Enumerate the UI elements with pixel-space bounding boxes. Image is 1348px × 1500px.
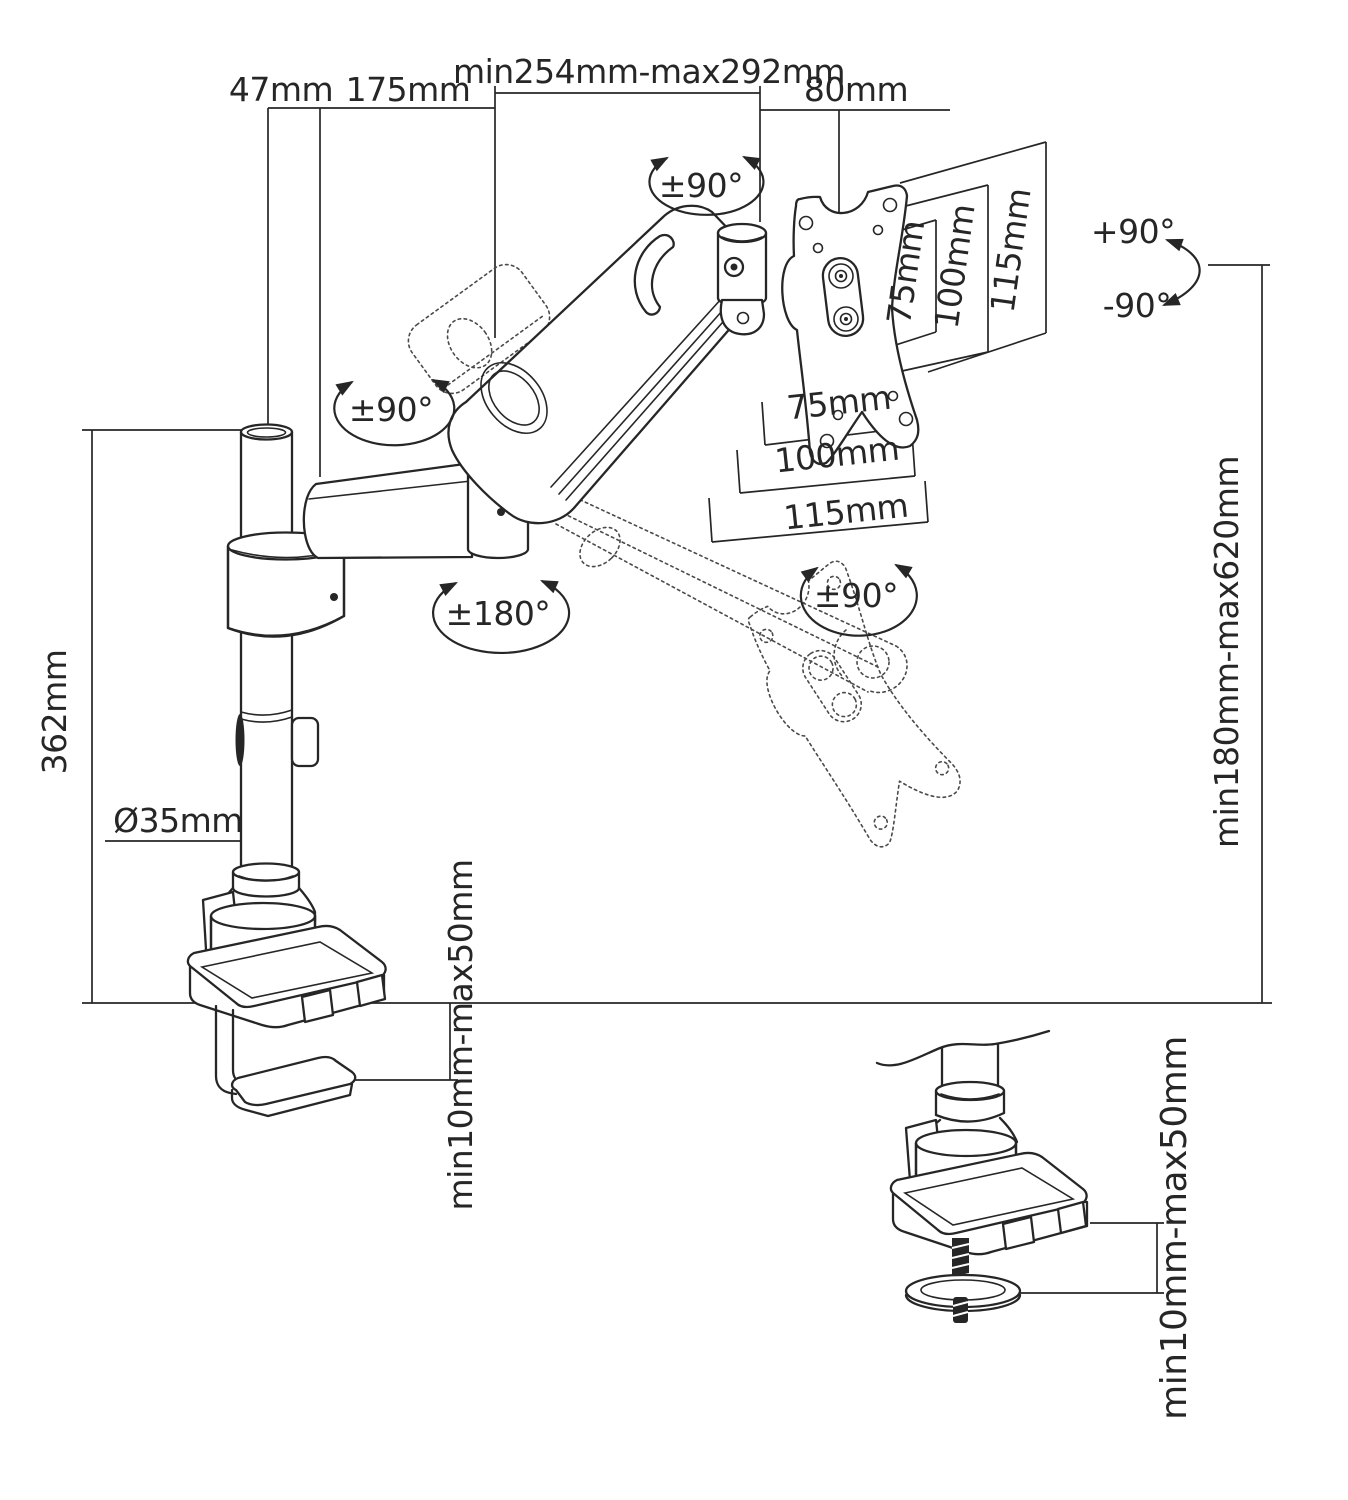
dim-clamp-thickness: min10mm-max50mm bbox=[441, 859, 480, 1210]
monitor-arm-diagram: 47mm 175mm min254mm-max292mm 80mm 362mm … bbox=[0, 0, 1348, 1500]
diagram-page: 47mm 175mm min254mm-max292mm 80mm 362mm … bbox=[0, 0, 1348, 1500]
rot-vesa: ±90° bbox=[814, 576, 898, 615]
tilt-joint bbox=[718, 224, 766, 334]
dim-175mm: 175mm bbox=[346, 70, 471, 109]
rot-screen-down: -90° bbox=[1103, 286, 1171, 325]
rot-tilt: ±90° bbox=[659, 166, 743, 205]
dim-pole-diameter: Ø35mm bbox=[113, 801, 243, 840]
dim-reach-range: min254mm-max292mm bbox=[453, 52, 845, 91]
dim-47mm: 47mm bbox=[229, 70, 333, 109]
vesa-side-100: 100mm bbox=[927, 202, 983, 331]
vesa-bottom-100: 100mm bbox=[773, 429, 901, 481]
vesa-bottom-115: 115mm bbox=[782, 486, 910, 538]
grommet-mount bbox=[877, 1031, 1087, 1323]
dim-80mm: 80mm bbox=[804, 70, 908, 109]
desk-clamp bbox=[188, 888, 386, 1116]
vesa-side-115: 115mm bbox=[983, 186, 1039, 315]
rot-screen-up: +90° bbox=[1091, 212, 1175, 251]
arm-segment-1 bbox=[304, 463, 472, 558]
dim-grommet-thickness: min10mm-max50mm bbox=[1154, 1036, 1195, 1420]
rot-arm-swivel: ±180° bbox=[446, 594, 551, 633]
pole bbox=[233, 425, 318, 897]
rot-pole: ±90° bbox=[349, 390, 433, 429]
dim-height-range: min180mm-max620mm bbox=[1207, 456, 1246, 848]
dim-362mm: 362mm bbox=[35, 650, 74, 775]
